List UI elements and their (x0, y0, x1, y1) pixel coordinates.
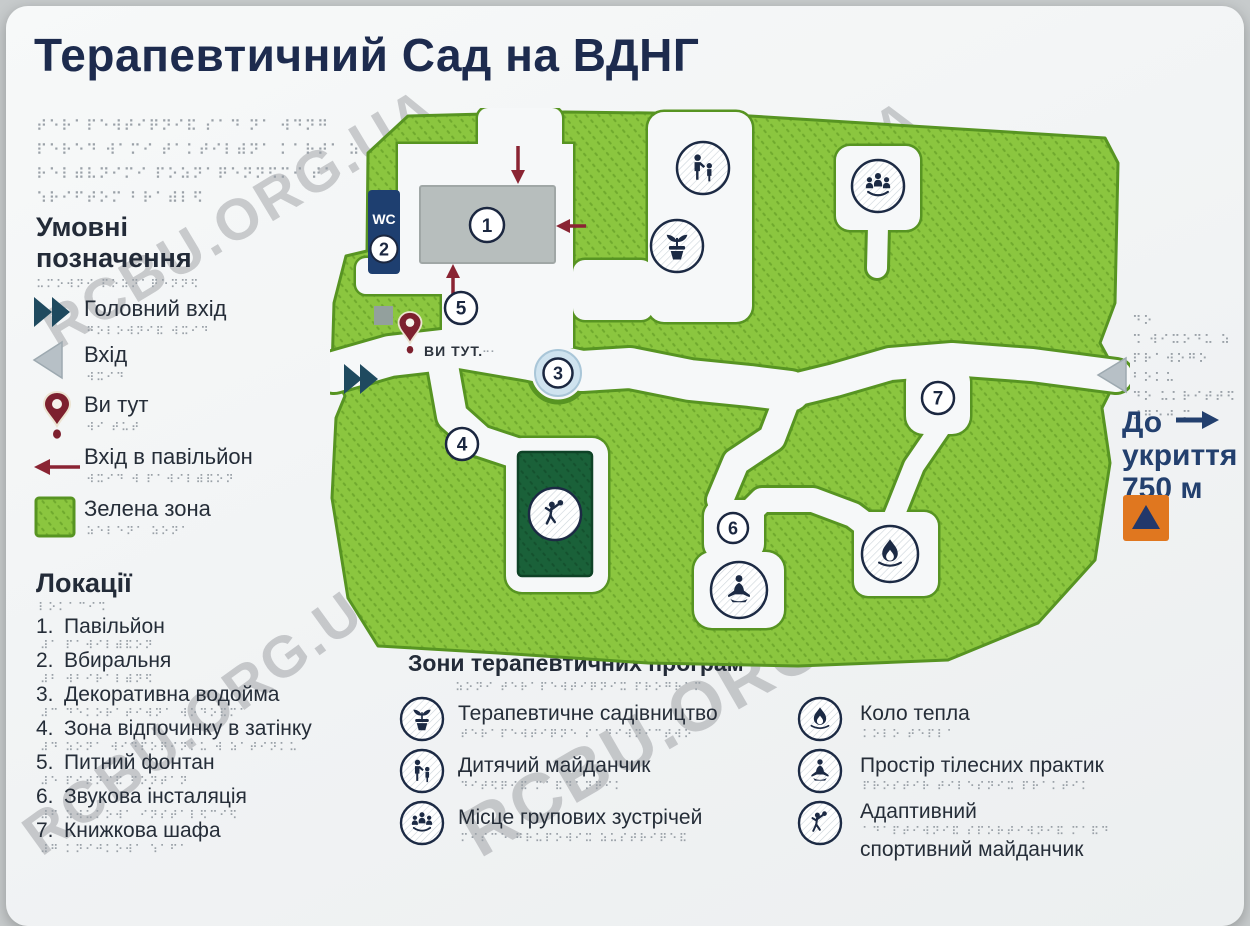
location-number: 7. (36, 819, 64, 843)
legend-item-main-entrance: Головний вхід (84, 296, 226, 322)
children-icon (399, 748, 445, 799)
program-label-line2: спортивний майданчик (860, 838, 1083, 862)
location-item-3: 3.Декоративна водойма (36, 683, 279, 707)
legend-item-braille: ⠵⠑⠇⠑⠝⠁ ⠵⠕⠝⠁ (86, 524, 190, 538)
program-braille: ⠏⠗⠕⠎⠞⠊⠗ ⠞⠊⠇⠑⠎⠝⠊⠭ ⠏⠗⠁⠅⠞⠊⠅ (862, 779, 1091, 793)
program-label: Дитячий майданчик (458, 754, 650, 778)
program-braille: ⠙⠊⠞⠫⠟⠊⠯ ⠍⠁⠯⠙⠁⠝⠟⠊⠅ (460, 779, 624, 793)
legend-item-pavilion-entrance: Вхід в павільйон (84, 444, 253, 470)
program-braille: ⠅⠕⠇⠕ ⠞⠑⠏⠇⠁ (862, 727, 956, 741)
yoga-icon (711, 562, 767, 618)
programs-heading-braille: ⠵⠕⠝⠊ ⠞⠑⠗⠁⠏⠑⠺⠞⠊⠟⠝⠊⠭ ⠏⠗⠕⠛⠗⠁⠍ (455, 680, 703, 694)
double-arrow-icon (32, 296, 76, 328)
braille-line: ⠞⠑⠗⠁⠏⠑⠺⠞⠊⠟⠝⠊⠯ ⠎⠁⠙ ⠝⠁ ⠺⠙⠝⠛ (36, 114, 361, 138)
group-meeting-icon (399, 800, 445, 851)
braille-intro-block: ⠞⠑⠗⠁⠏⠑⠺⠞⠊⠟⠝⠊⠯ ⠎⠁⠙ ⠝⠁ ⠺⠙⠝⠛ ⠏⠑⠗⠑⠙ ⠺⠁⠍⠊ ⠞⠁⠅… (36, 114, 361, 210)
location-label: Павільйон (64, 615, 165, 638)
program-label: Місце групових зустрічей (458, 806, 702, 830)
braille-line: ⠙⠕ ⠥⠅⠗⠊⠞⠞⠫ (1132, 388, 1250, 407)
garden-map: WC 2 1 5 4 3 ВИ ТУТ. ⠒⠂ 6 7 (330, 108, 1130, 668)
location-item-6: 6.Звукова інсталяція (36, 785, 247, 809)
group-meeting-icon (852, 160, 904, 212)
location-number: 5. (36, 751, 64, 775)
program-label: Адаптивний (860, 800, 977, 824)
location-item-5: 5.Питний фонтан (36, 751, 215, 775)
location-label: Декоративна водойма (64, 683, 279, 706)
program-braille: ⠍⠊⠎⠉⠑ ⠛⠗⠥⠏⠕⠺⠊⠭ ⠵⠥⠎⠞⠗⠊⠟⠑⠯ (460, 831, 689, 845)
shelter-direction-row: До (1122, 406, 1220, 439)
location-item-2: 2.Вбиральня (36, 649, 171, 673)
svg-text:4: 4 (457, 435, 468, 456)
svg-text:5: 5 (456, 299, 467, 320)
adaptive-sport-icon (797, 800, 843, 851)
locations-heading: Локації (36, 568, 132, 599)
program-braille: ⠁⠙⠁⠏⠞⠊⠺⠝⠊⠯ ⠎⠏⠕⠗⠞⠊⠺⠝⠊⠯ ⠍⠁⠯⠙ (862, 824, 1110, 838)
program-braille: ⠞⠑⠗⠁⠏⠑⠺⠞⠊⠟⠝⠑ ⠎⠁⠙⠊⠺⠝⠊⠉⠞⠺⠕ (460, 727, 693, 741)
svg-text:3: 3 (553, 364, 563, 384)
warmth-fire-icon (862, 526, 918, 582)
legend-item-you-are-here: Ви тут (84, 392, 148, 418)
red-arrow-icon (32, 458, 82, 476)
location-label: Вбиральня (64, 649, 171, 672)
legend-item-braille: ⠺⠭⠊⠙ ⠺ ⠏⠁⠺⠊⠇⠾⠯⠕⠝ (86, 472, 235, 486)
svg-text:7: 7 (933, 389, 944, 410)
svg-text:6: 6 (728, 519, 738, 539)
plant-pot-icon (651, 220, 703, 272)
braille-line: ⠏⠗⠁⠺⠕⠛⠕ ⠃⠕⠅⠥ (1132, 350, 1250, 388)
children-icon (677, 142, 729, 194)
program-label: Коло тепла (860, 702, 970, 726)
location-label: Зона відпочинку в затінку (64, 717, 312, 740)
legend-item-braille: ⠛⠕⠇⠕⠺⠝⠊⠯ ⠺⠭⠊⠙ (86, 324, 210, 338)
legend-item-green-zone: Зелена зона (84, 496, 211, 522)
locations-heading-braille: ⠇⠕⠅⠁⠉⠊⠩ (38, 600, 107, 614)
warmth-fire-icon (797, 696, 843, 747)
map-pin-icon (38, 390, 76, 442)
program-label: Простір тілесних практик (860, 754, 1104, 778)
gray-triangle-icon (32, 340, 64, 380)
location-number: 6. (36, 785, 64, 809)
braille-line: ⠩ ⠺⠊⠭⠕⠙⠥ ⠵ (1132, 331, 1250, 350)
braille-line: ⠗⠑⠇⠾⠧⠝⠊⠍⠊ ⠏⠕⠵⠝⠁⠟⠑⠝⠝⠫⠍⠊ ⠞⠁ (36, 162, 361, 186)
location-item-4: 4.Зона відпочинку в затінку (36, 717, 312, 741)
bench-square (374, 306, 393, 325)
location-number: 2. (36, 649, 64, 673)
you-are-here-label: ВИ ТУТ. (424, 343, 483, 359)
location-item-1: 1.Павільйон (36, 615, 165, 639)
braille-line: ⠱⠗⠊⠋⠞⠕⠍ ⠃⠗⠁⠾⠇⠫ (36, 186, 361, 210)
svg-text:2: 2 (379, 240, 389, 260)
location-number: 1. (36, 615, 64, 639)
legend-heading-braille: ⠥⠍⠕⠺⠝⠊ ⠏⠕⠵⠝⠁⠟⠑⠝⠝⠫ (36, 277, 200, 291)
wc-label: WC (372, 211, 395, 227)
braille-line: ⠙⠕ (1132, 312, 1250, 331)
braille-line: ⠏⠑⠗⠑⠙ ⠺⠁⠍⠊ ⠞⠁⠅⠞⠊⠇⠾⠝⠁ ⠅⠁⠗⠞⠁ ⠵ (36, 138, 361, 162)
yoga-icon (797, 748, 843, 799)
location-item-7: 7.Книжкова шафа (36, 819, 221, 843)
plant-pot-icon (399, 696, 445, 747)
you-are-here-braille: ⠒⠂ (482, 347, 498, 359)
location-number: 3. (36, 683, 64, 707)
page-title: Терапевтичний Сад на ВДНГ (34, 28, 699, 82)
legend-item-braille: ⠺⠊ ⠞⠥⠞ (86, 420, 141, 434)
legend-item-braille: ⠺⠭⠊⠙ (86, 370, 126, 384)
location-number: 4. (36, 717, 64, 741)
program-label: Терапевтичне садівництво (458, 702, 718, 726)
shelter-line2: укриття (1122, 439, 1237, 472)
legend-heading: Умовні позначення (36, 212, 266, 274)
location-label: Звукова інсталяція (64, 785, 247, 808)
right-arrow-icon (1174, 410, 1220, 435)
adaptive-sport-icon (529, 488, 581, 540)
green-square-icon (34, 496, 76, 538)
location-braille: ⠼⠛ ⠅⠝⠊⠚⠅⠕⠺⠁ ⠱⠁⠋⠁ (40, 842, 189, 856)
location-label: Книжкова шафа (64, 819, 221, 842)
location-label: Питний фонтан (64, 751, 215, 774)
legend-item-entrance: Вхід (84, 342, 127, 368)
svg-text:1: 1 (482, 216, 493, 237)
